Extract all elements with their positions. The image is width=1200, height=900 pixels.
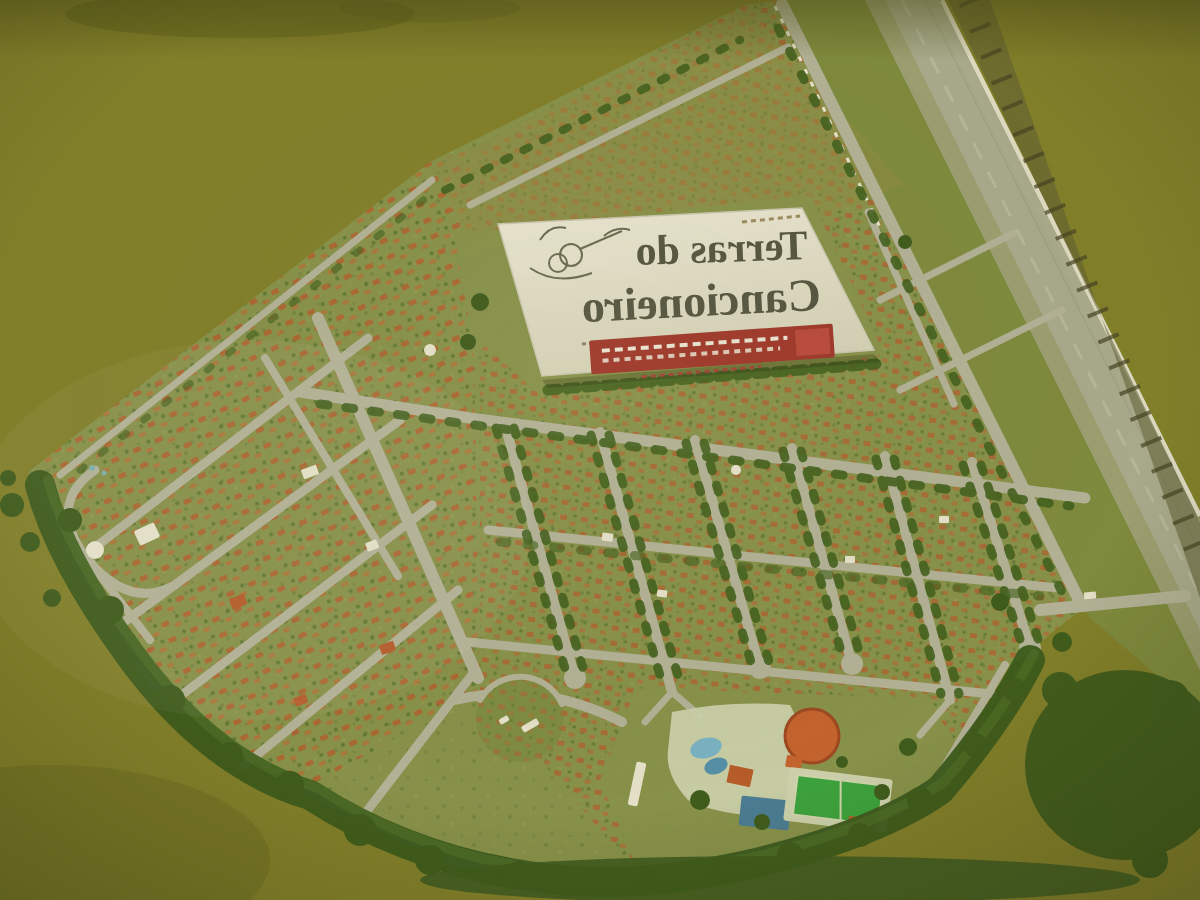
scene-canvas: Terras do Cancioneiro <box>0 0 1200 900</box>
model-photo: Terras do Cancioneiro <box>0 0 1200 900</box>
vignette <box>0 0 1200 900</box>
